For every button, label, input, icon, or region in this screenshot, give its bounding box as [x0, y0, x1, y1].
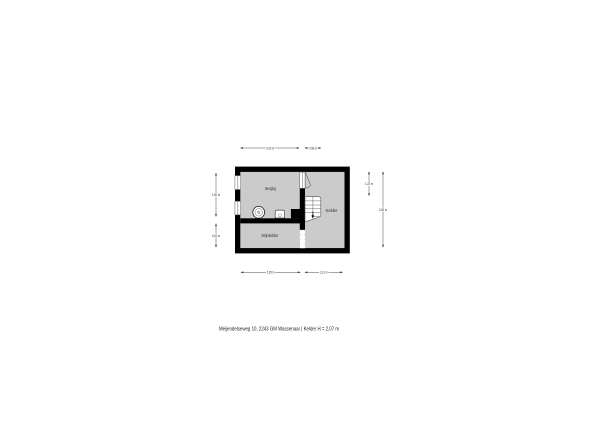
- svg-text:1,23 m: 1,23 m: [365, 182, 373, 186]
- svg-text:2,05 m: 2,05 m: [267, 270, 275, 275]
- svg-text:1,50 m: 1,50 m: [212, 193, 220, 197]
- svg-text:2,03 m: 2,03 m: [266, 145, 274, 150]
- svg-text:0,81 m: 0,81 m: [212, 234, 220, 238]
- svg-text:Meijendelseweg 10, 2243 GM Was: Meijendelseweg 10, 2243 GM Wassenaar | K…: [219, 327, 339, 333]
- svg-text:Berging: Berging: [265, 186, 276, 191]
- svg-text:Kelder: Kelder: [326, 208, 338, 213]
- svg-text:0,56 m: 0,56 m: [309, 145, 317, 150]
- svg-text:2,60 m: 2,60 m: [379, 208, 387, 212]
- svg-text:Wijnkelder: Wijnkelder: [262, 233, 279, 238]
- svg-text:1,31 m: 1,31 m: [320, 270, 328, 275]
